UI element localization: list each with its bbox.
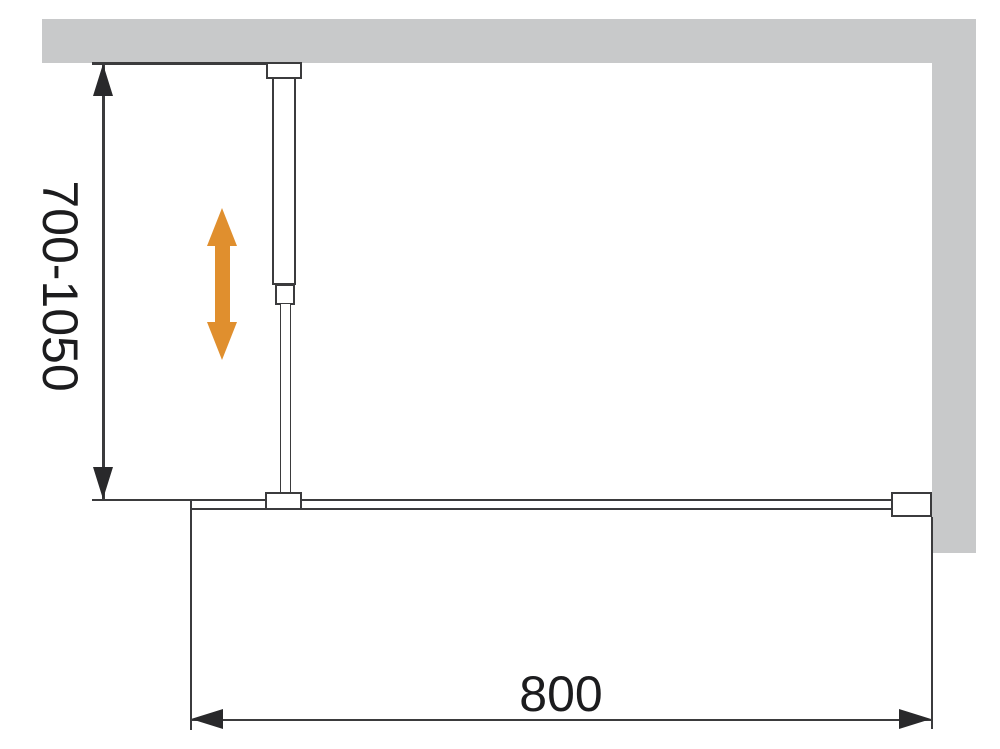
adjust-arrow-shaft	[215, 244, 230, 324]
panel-width-label: 800	[461, 669, 661, 719]
height-adjust-arrow-icon	[207, 208, 238, 360]
arrow-left-icon	[191, 709, 223, 729]
support-bar-range-label: 700-1050	[35, 180, 85, 392]
installation-diagram: 700-1050 800	[0, 0, 1000, 749]
wall-mount-bracket-right	[891, 492, 932, 517]
left-extension-line	[190, 504, 192, 730]
support-bar-outer-tube	[272, 77, 296, 285]
adjust-arrow-head-up	[207, 208, 237, 246]
glass-clamp-bracket	[265, 492, 302, 511]
wall-mount-bracket-top	[266, 62, 302, 79]
right-extension-line	[931, 517, 933, 729]
arrow-down-icon	[93, 467, 113, 499]
wall-right	[932, 19, 976, 553]
support-bar-collar	[275, 284, 295, 305]
adjust-arrow-head-down	[207, 322, 237, 360]
support-bar-inner-rod	[280, 303, 291, 494]
arrow-right-icon	[899, 709, 931, 729]
glass-extension-line	[92, 499, 192, 501]
wall-top	[42, 19, 976, 63]
arrow-up-icon	[93, 64, 113, 96]
vertical-dimension-line	[102, 64, 104, 499]
ceiling-extension-line	[92, 62, 266, 64]
